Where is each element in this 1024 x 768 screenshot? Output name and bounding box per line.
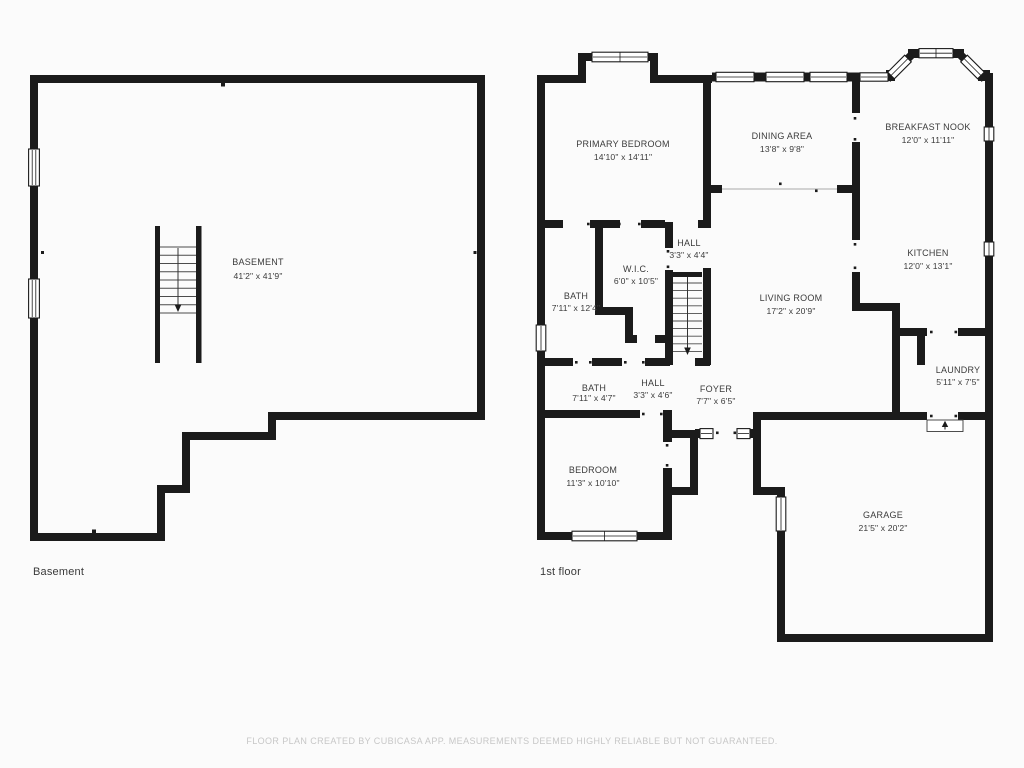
- room-dims-hall-lower: 3'3" x 4'6": [633, 390, 672, 400]
- room-label-living-room: LIVING ROOM: [760, 293, 823, 303]
- room-dims-hall-upper: 3'3" x 4'4": [669, 250, 708, 260]
- room-dims-foyer: 7'7" x 6'5": [696, 396, 735, 406]
- room-dims-bath-lower: 7'11" x 4'7": [572, 393, 616, 403]
- room-label-breakfast-nook: BREAKFAST NOOK: [885, 122, 970, 132]
- room-label-hall-lower: HALL: [641, 378, 665, 388]
- basement-window-upper: [29, 149, 40, 186]
- floor-plan-image: BASEMENT 41'2" x 41'9" Basement: [0, 0, 1024, 768]
- dining-window-3: [810, 72, 847, 81]
- room-label-dining-area: DINING AREA: [752, 131, 813, 141]
- room-label-basement: BASEMENT: [232, 257, 284, 267]
- room-dims-laundry: 5'11" x 7'5": [936, 377, 980, 387]
- room-label-garage: GARAGE: [863, 510, 903, 520]
- room-dims-basement: 41'2" x 41'9": [233, 271, 282, 281]
- room-dims-primary-bedroom: 14'10" x 14'11": [594, 152, 652, 162]
- nook-top-window: [919, 49, 953, 58]
- dining-window-1: [716, 72, 754, 81]
- room-dims-garage: 21'5" x 20'2": [858, 523, 907, 533]
- garage-west-window: [776, 497, 786, 531]
- page-background: [0, 0, 1024, 768]
- room-label-bath-upper: BATH: [564, 291, 588, 301]
- room-dims-kitchen: 12'0" x 13'1": [903, 261, 952, 271]
- entry-sidelite-left: [700, 429, 713, 439]
- room-dims-bedroom: 11'3" x 10'10": [566, 478, 619, 488]
- dining-window-2: [766, 72, 804, 81]
- nook-east-window: [984, 127, 994, 141]
- bedroom-window: [572, 531, 637, 541]
- room-label-foyer: FOYER: [700, 384, 733, 394]
- room-label-bedroom: BEDROOM: [569, 465, 617, 475]
- basement-window-lower: [29, 279, 40, 318]
- primary-bedroom-bay-window: [592, 52, 648, 62]
- room-dims-dining-area: 13'8" x 9'8": [760, 144, 804, 154]
- room-label-bath-lower: BATH: [582, 383, 606, 393]
- floor-label-basement: Basement: [33, 566, 84, 578]
- floor-label-first-floor: 1st floor: [540, 566, 581, 578]
- garage-entry-door: [927, 420, 963, 432]
- entry-sidelite-right: [737, 429, 750, 439]
- room-label-primary-bedroom: PRIMARY BEDROOM: [576, 139, 669, 149]
- room-label-kitchen: KITCHEN: [907, 248, 948, 258]
- bath-west-window: [536, 325, 546, 351]
- kitchen-east-window: [984, 242, 994, 256]
- room-dims-wic: 6'0" x 10'5": [614, 276, 658, 286]
- room-dims-bath-upper: 7'11" x 12'4": [552, 303, 600, 313]
- disclaimer-text: FLOOR PLAN CREATED BY CUBICASA APP. MEAS…: [246, 736, 777, 746]
- room-label-hall-upper: HALL: [677, 238, 701, 248]
- nook-left-window: [860, 73, 888, 81]
- room-dims-living-room: 17'2" x 20'9": [766, 306, 815, 316]
- room-label-laundry: LAUNDRY: [936, 365, 981, 375]
- room-dims-breakfast-nook: 12'0" x 11'11": [902, 135, 955, 145]
- room-label-wic: W.I.C.: [623, 264, 649, 274]
